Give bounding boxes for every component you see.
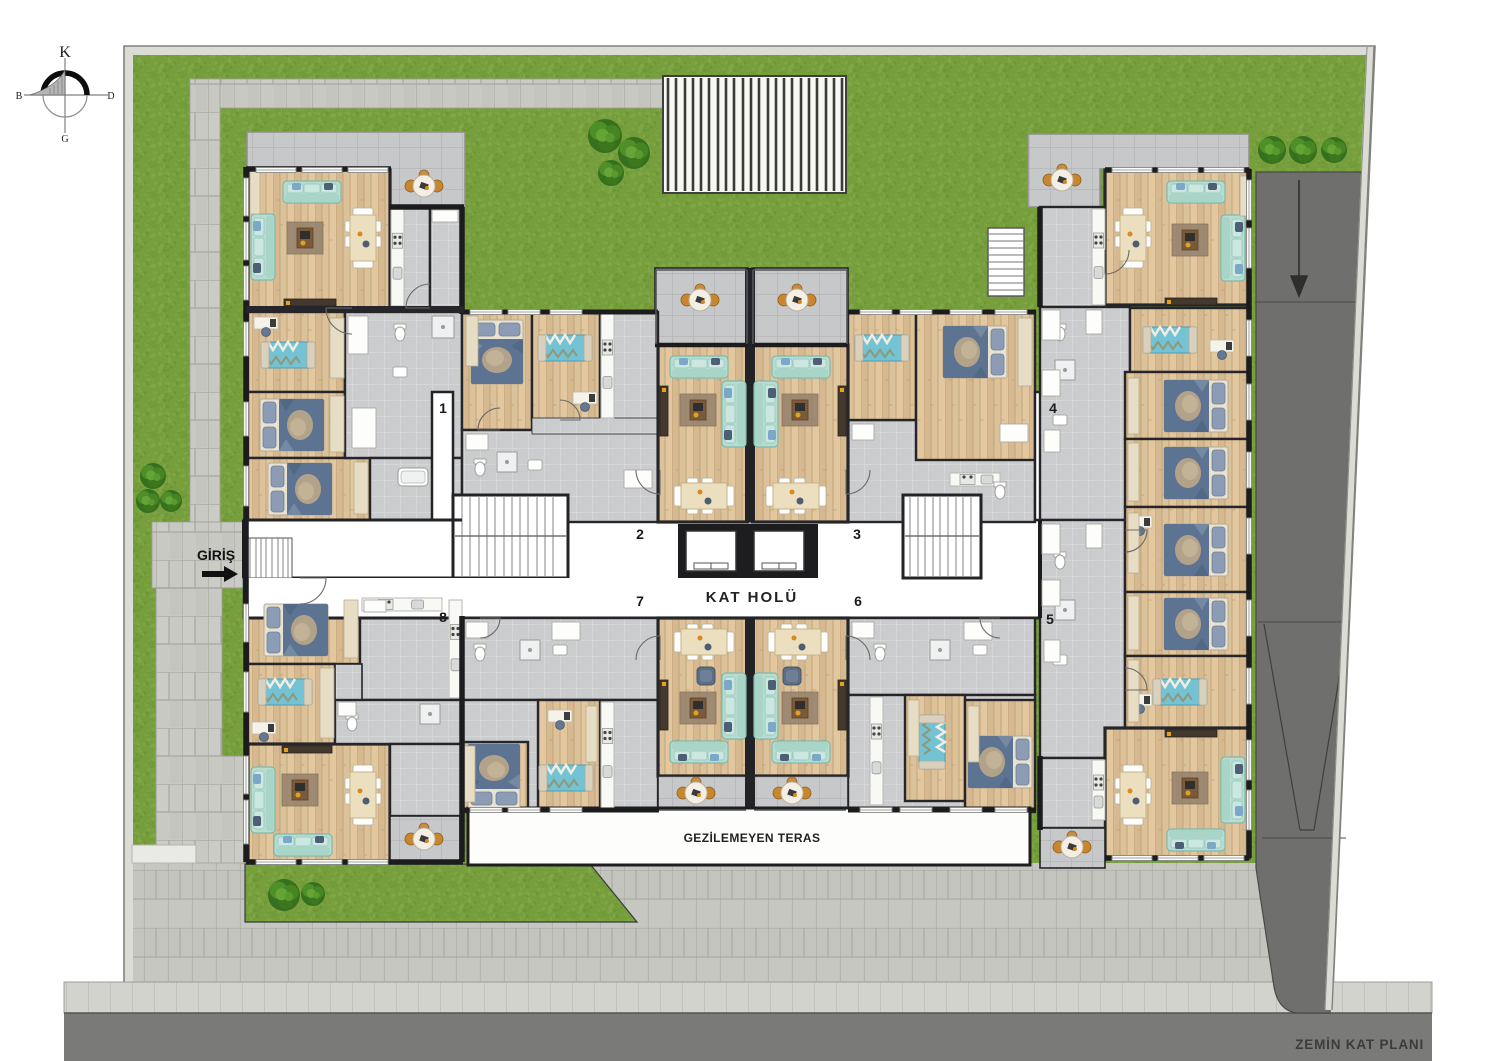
svg-text:3: 3	[853, 526, 861, 542]
svg-text:GEZİLEMEYEN TERAS: GEZİLEMEYEN TERAS	[684, 830, 821, 845]
svg-text:GİRİŞ: GİRİŞ	[197, 547, 235, 563]
svg-text:1: 1	[439, 400, 447, 416]
svg-text:4: 4	[1049, 400, 1057, 416]
svg-text:B: B	[16, 91, 23, 102]
svg-text:K: K	[59, 44, 71, 61]
svg-text:8: 8	[439, 609, 447, 625]
svg-text:5: 5	[1046, 611, 1054, 627]
svg-text:KAT HOLÜ: KAT HOLÜ	[706, 589, 798, 606]
svg-text:2: 2	[636, 526, 644, 542]
svg-text:ZEMİN KAT PLANI: ZEMİN KAT PLANI	[1295, 1037, 1424, 1052]
svg-text:D: D	[107, 91, 114, 102]
svg-text:G: G	[61, 134, 68, 145]
svg-text:6: 6	[854, 593, 862, 609]
svg-text:7: 7	[636, 593, 644, 609]
